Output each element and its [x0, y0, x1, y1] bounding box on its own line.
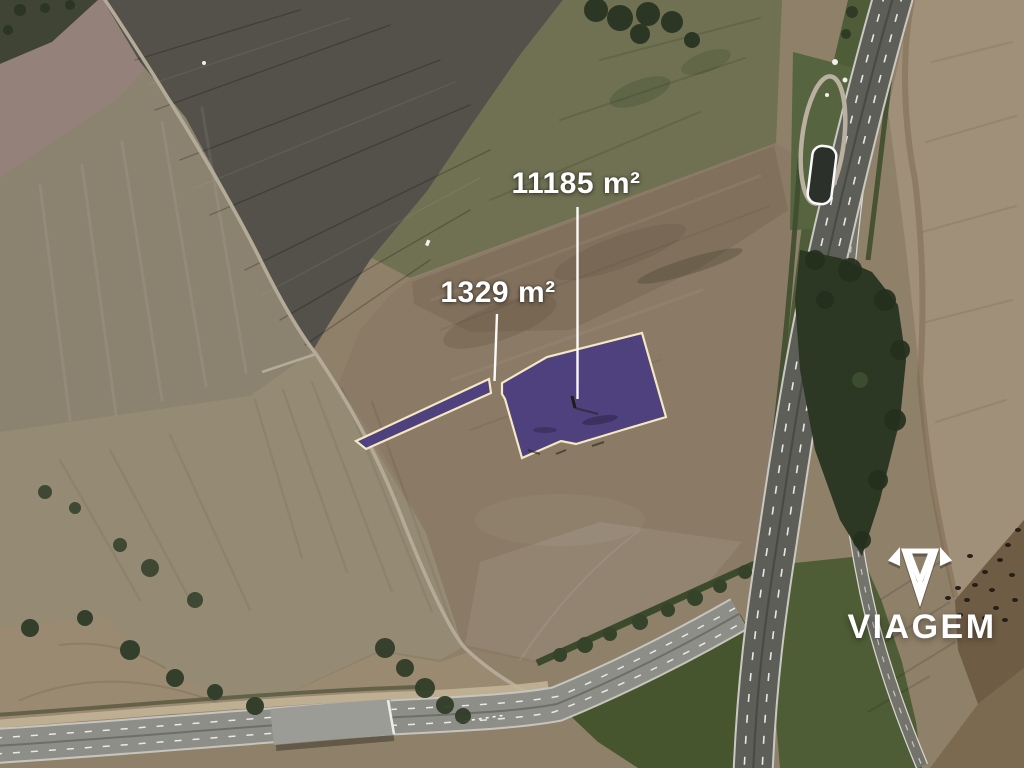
satellite-map — [0, 0, 1024, 768]
viagem-logo-wordmark: VIAGEM — [847, 610, 996, 644]
area-label-main-parcel: 11185 m² — [511, 169, 640, 199]
listing-aerial-image: 11185 m² 1329 m² VIAGEM — [0, 0, 1024, 768]
overpass-bridge — [272, 717, 392, 727]
area-label-strip-parcel: 1329 m² — [440, 278, 555, 308]
